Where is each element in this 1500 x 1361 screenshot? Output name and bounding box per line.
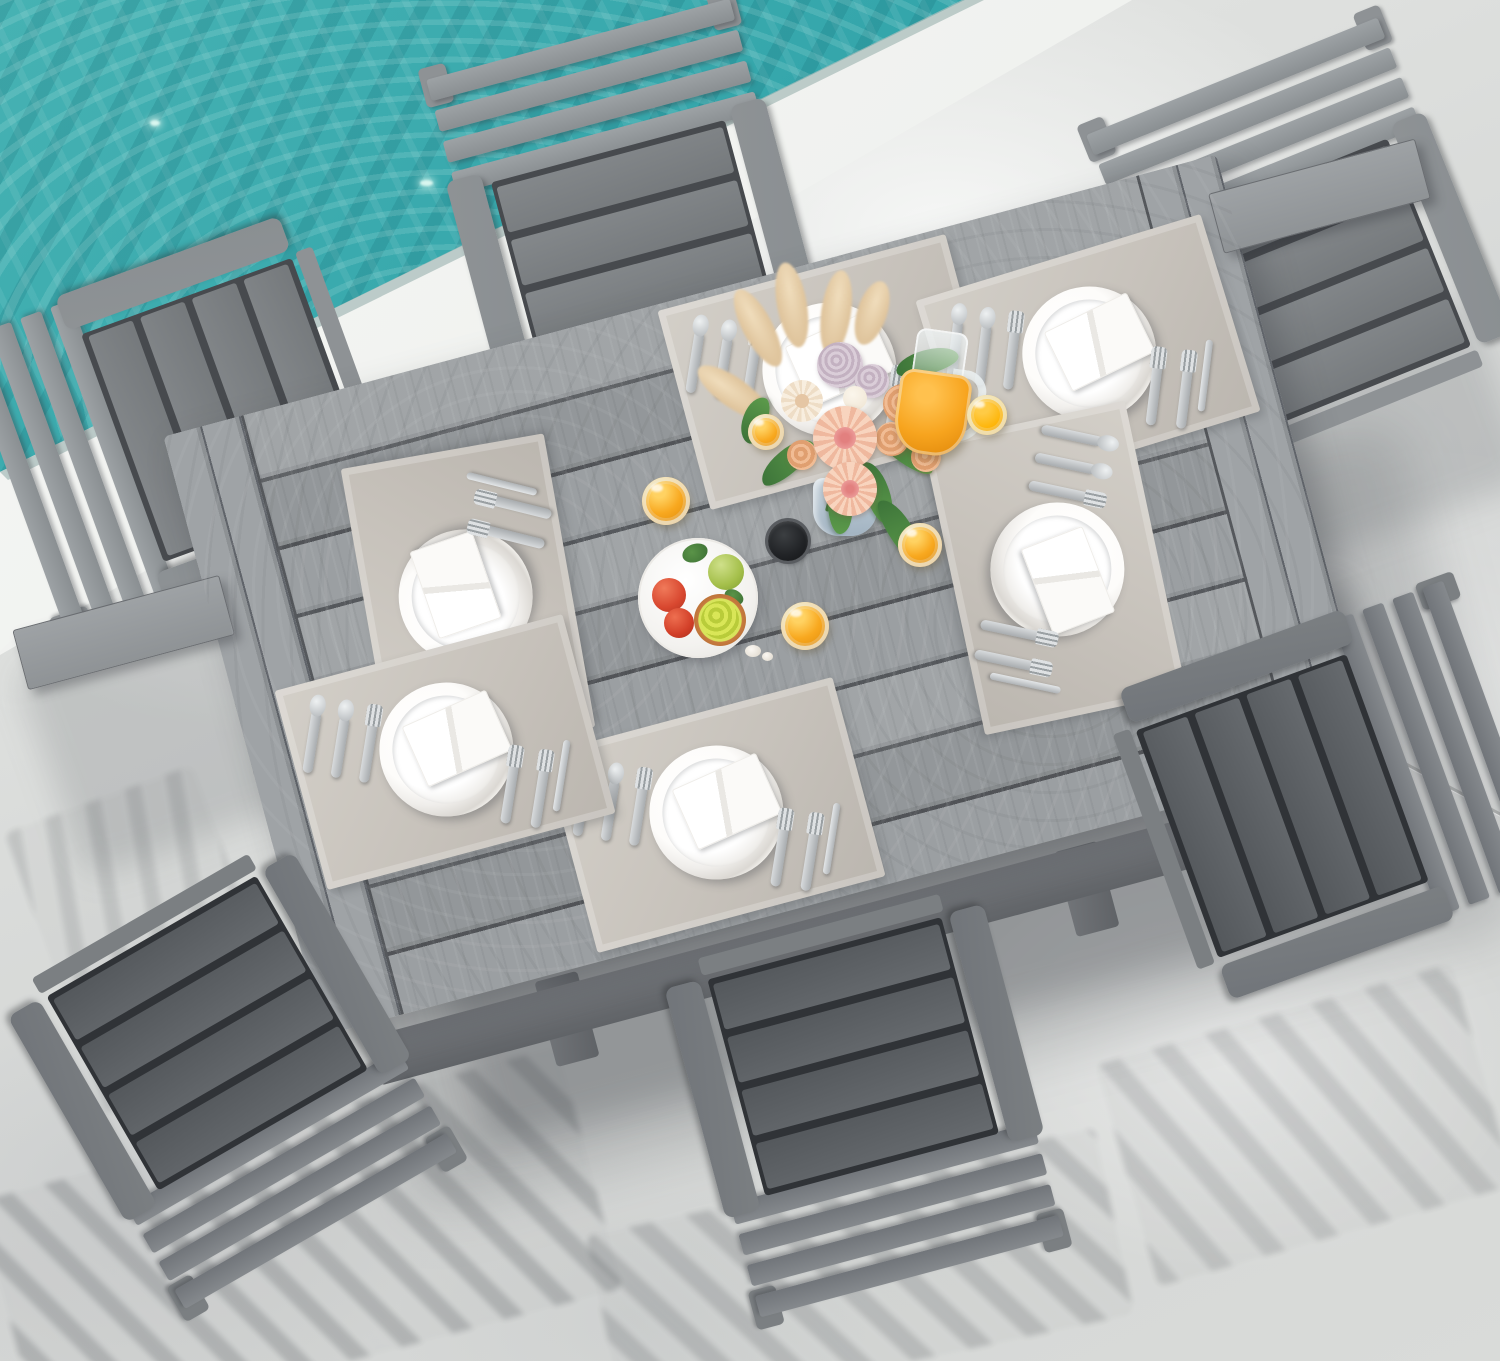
orange-juice-glass <box>642 477 690 525</box>
orange-juice-glass <box>748 414 784 450</box>
pitcher-juice <box>891 367 974 459</box>
orange-juice-glass <box>898 523 942 567</box>
green-apple <box>708 554 744 590</box>
small-shell <box>745 645 761 657</box>
red-apple <box>664 608 694 638</box>
water-sparkle <box>420 180 433 186</box>
peach-rose <box>787 440 817 470</box>
poolside-dining-set-photo <box>0 0 1500 1361</box>
orange-juice-glass <box>781 602 829 650</box>
grape-bowl <box>694 594 746 646</box>
water-sparkle <box>150 120 160 126</box>
fruit-plate <box>638 538 758 658</box>
cream-flower <box>781 380 823 422</box>
small-shell <box>762 652 773 661</box>
orange-juice-cup <box>967 395 1007 435</box>
peach-dahlia <box>813 406 877 470</box>
herb-sprig <box>680 540 711 566</box>
red-apple <box>652 578 686 612</box>
peach-dahlia <box>823 462 877 516</box>
